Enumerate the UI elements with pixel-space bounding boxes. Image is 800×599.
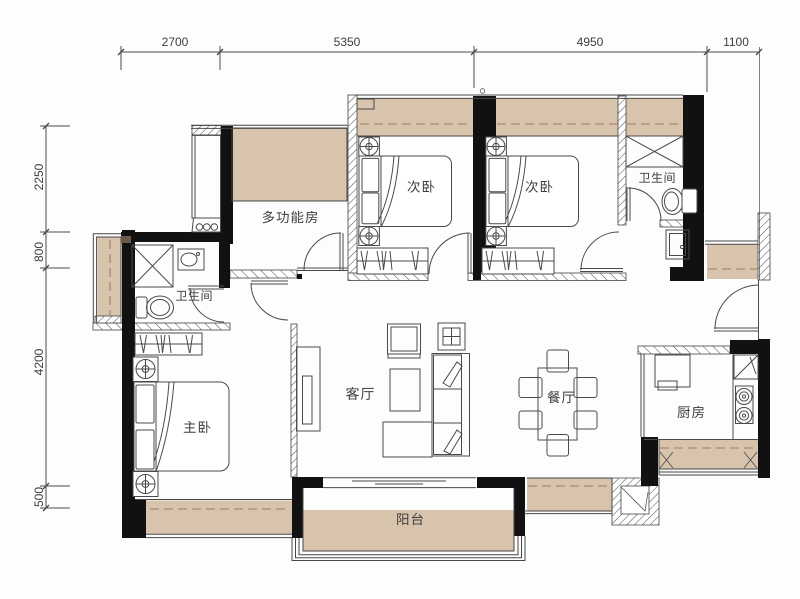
svg-text:5350: 5350 — [334, 35, 361, 49]
svg-text:2700: 2700 — [162, 35, 189, 49]
svg-text:800: 800 — [32, 242, 46, 262]
svg-text:500: 500 — [32, 487, 46, 507]
svg-text:2250: 2250 — [32, 163, 46, 190]
svg-text:4950: 4950 — [577, 35, 604, 49]
svg-text:4200: 4200 — [32, 348, 46, 375]
svg-text:1100: 1100 — [723, 35, 749, 49]
